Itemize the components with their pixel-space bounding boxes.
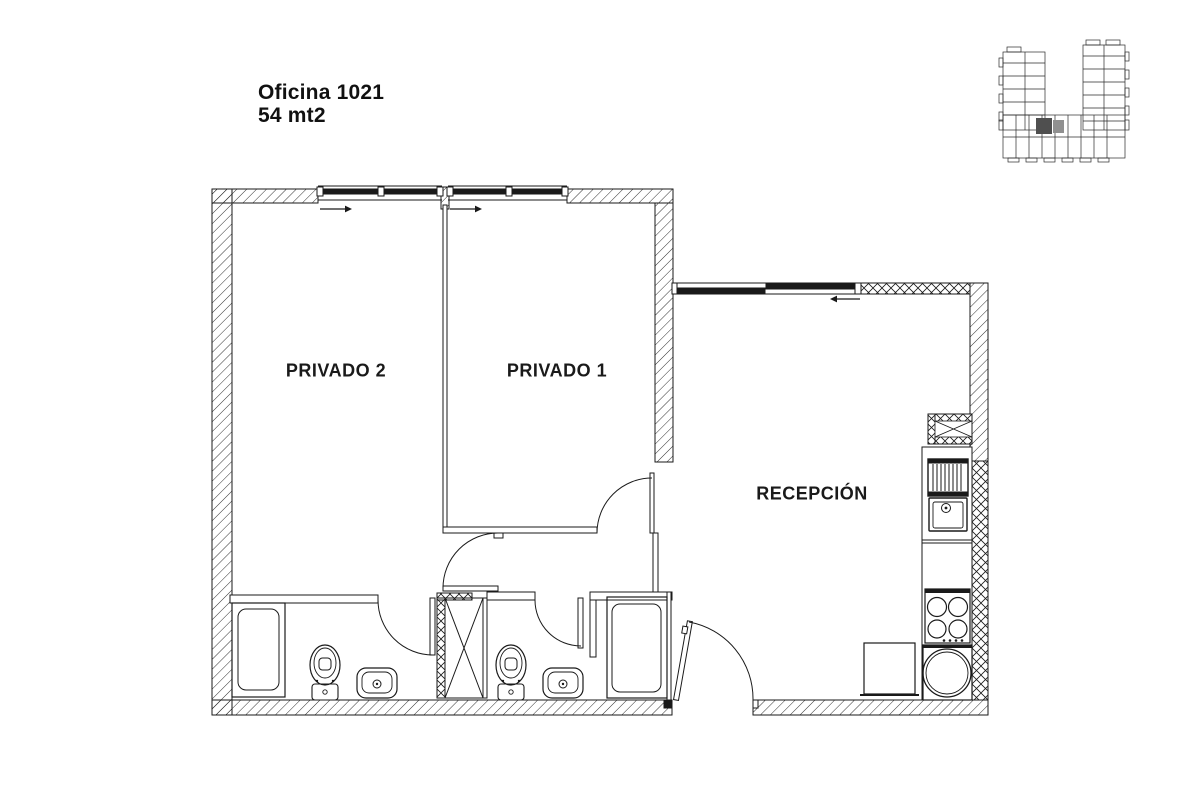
wall-privado2-privado1 [443, 205, 447, 533]
wall-bottom-right [753, 700, 988, 715]
window-privado-2 [317, 186, 443, 212]
door-bathroom-left [378, 598, 435, 655]
site-plan-right-wing [1083, 40, 1129, 130]
wall-bathroom-right-divider [590, 600, 596, 657]
highlighted-unit-secondary [1053, 120, 1064, 133]
shower-right [607, 597, 667, 698]
wall-left [212, 189, 232, 715]
toilet-right [496, 645, 526, 700]
wall-bathroom-right-top-a [487, 592, 535, 600]
washer [923, 645, 972, 700]
refrigerator [860, 643, 919, 695]
duct-shaft [437, 593, 487, 698]
jamb-entrance [753, 700, 758, 708]
toilet-left [310, 645, 340, 700]
jamb-hallway-door [494, 533, 503, 538]
duct-x-brace [445, 598, 483, 698]
wall-bathroom-right-top-b [590, 592, 672, 600]
wall-bathroom-left-top [230, 595, 378, 603]
threshold-entrance [664, 700, 672, 708]
floor-plan-page: Oficina 1021 54 mt2 PRIVADO 2 PRIVADO 1 … [0, 0, 1200, 800]
exterior-walls [212, 187, 988, 715]
sink-left [357, 668, 397, 698]
slide-arrow-left-icon [830, 296, 860, 303]
wall-privado1-reception [655, 203, 673, 462]
wall-top-right [567, 189, 673, 203]
sink-right [543, 668, 583, 698]
shower-left [232, 603, 285, 697]
floor-plan-drawing [0, 0, 1200, 800]
slide-arrow-right-icon [450, 206, 482, 213]
wall-right-lower [970, 461, 988, 700]
kitchen-sink [929, 498, 967, 531]
wall-right-upper [970, 283, 988, 461]
site-plan-left-wing [999, 47, 1045, 130]
doors [378, 473, 753, 700]
window-privado-1 [447, 186, 568, 212]
kitchen [860, 414, 972, 700]
wall-hallway-reception [653, 533, 658, 592]
highlighted-unit [1036, 118, 1052, 134]
dishwasher [928, 459, 968, 496]
interior-walls [230, 205, 758, 708]
door-entrance [670, 620, 753, 700]
wall-top-left [212, 189, 318, 203]
slide-arrow-right-icon [320, 206, 352, 213]
window-reception [672, 283, 861, 302]
door-hallway [443, 533, 498, 591]
wall-bottom-left [212, 700, 672, 715]
site-plan [999, 40, 1129, 162]
upper-cabinet [928, 414, 972, 444]
duct-right-wall [483, 598, 487, 698]
stove [925, 589, 970, 643]
door-bathroom-right [535, 598, 583, 648]
door-privado-1 [597, 473, 654, 533]
wall-privado1-bottom [443, 527, 597, 533]
bathroom-left [232, 603, 397, 700]
duct-left-strip [437, 598, 445, 698]
wall-reception-top [857, 283, 970, 294]
